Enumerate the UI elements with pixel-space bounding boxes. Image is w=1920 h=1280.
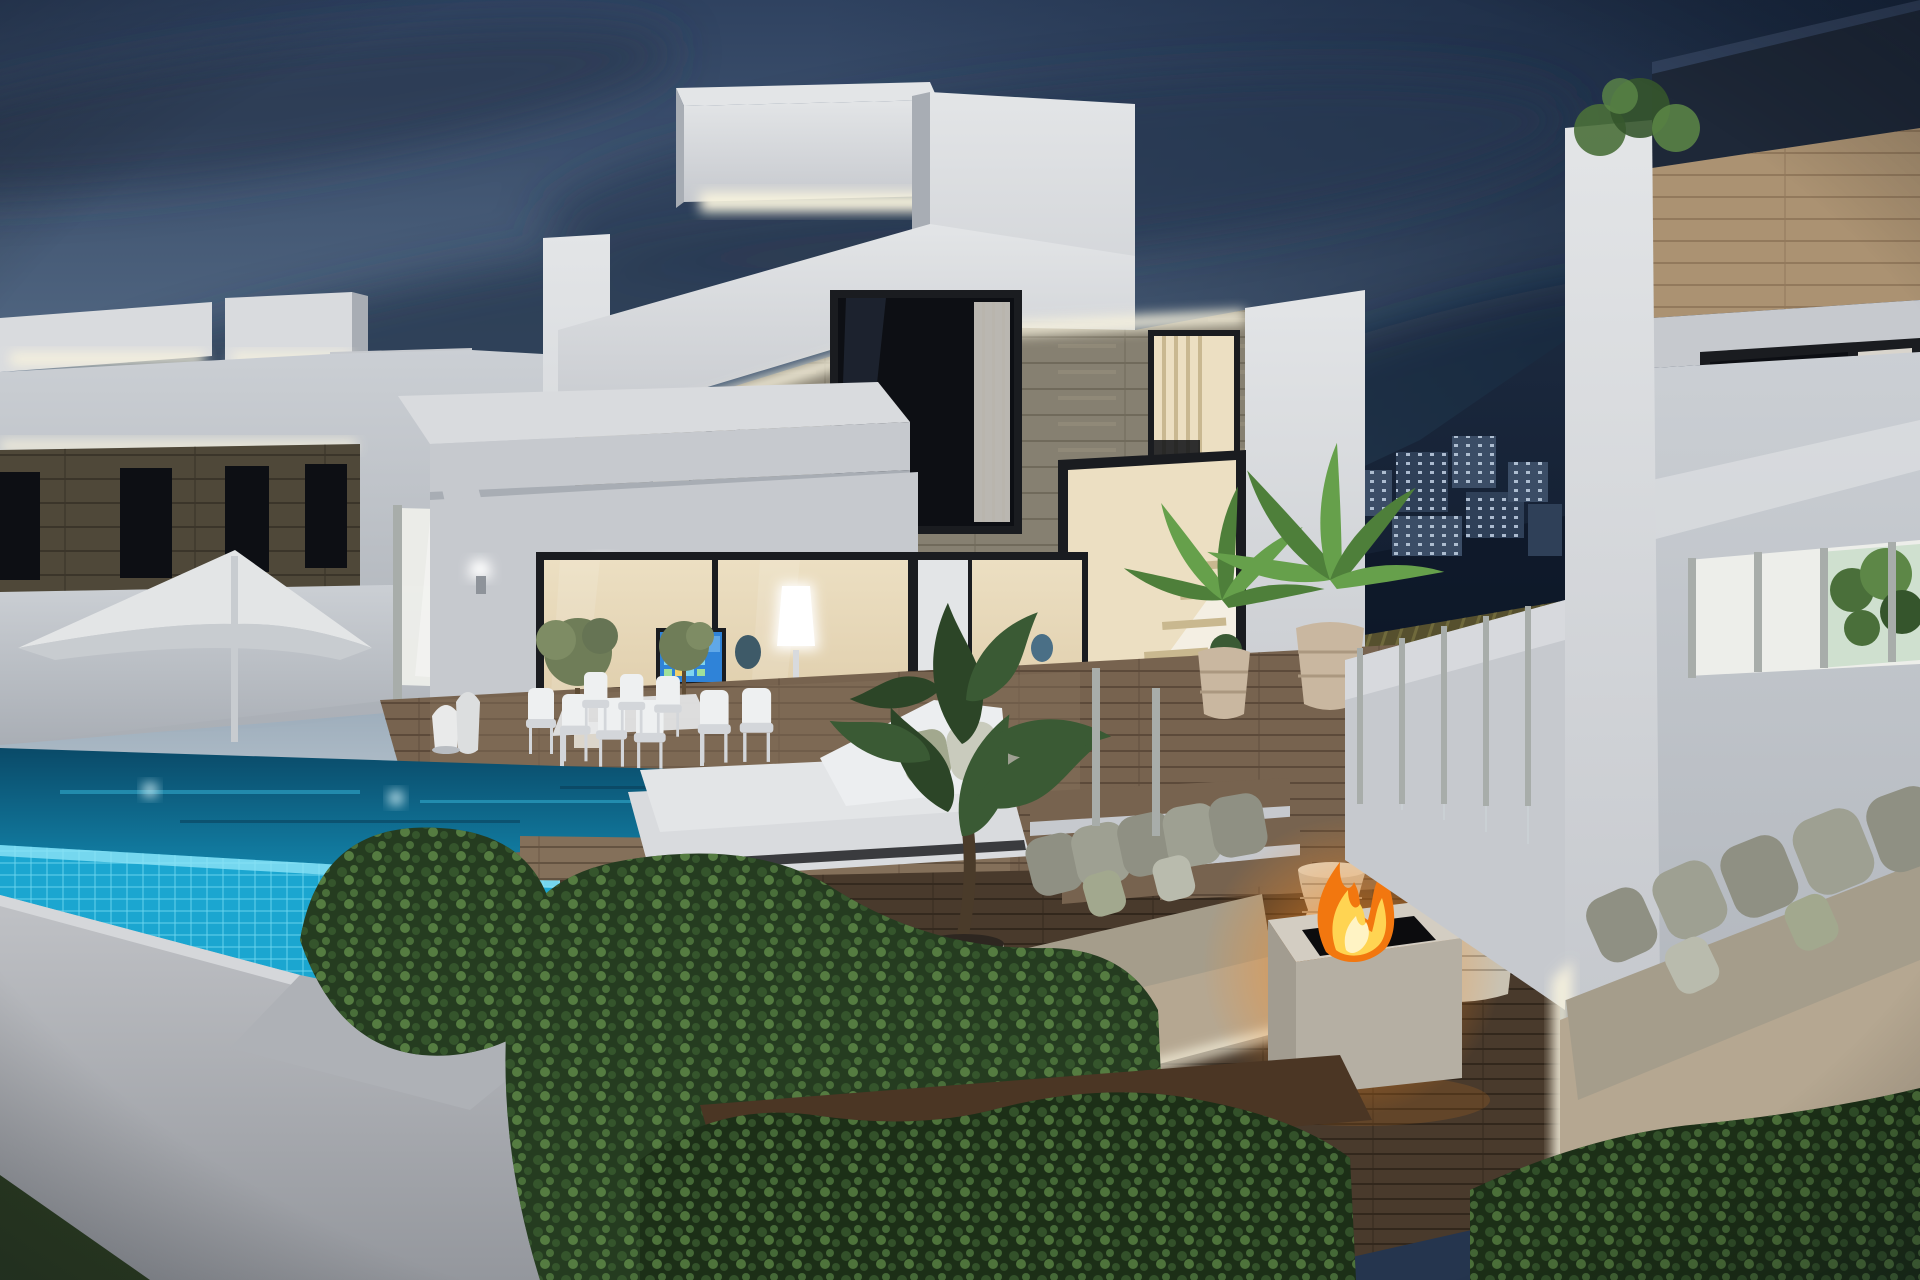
vignette: [0, 0, 1920, 1280]
villa-render-scene: [0, 0, 1920, 1280]
render-canvas: [0, 0, 1920, 1280]
